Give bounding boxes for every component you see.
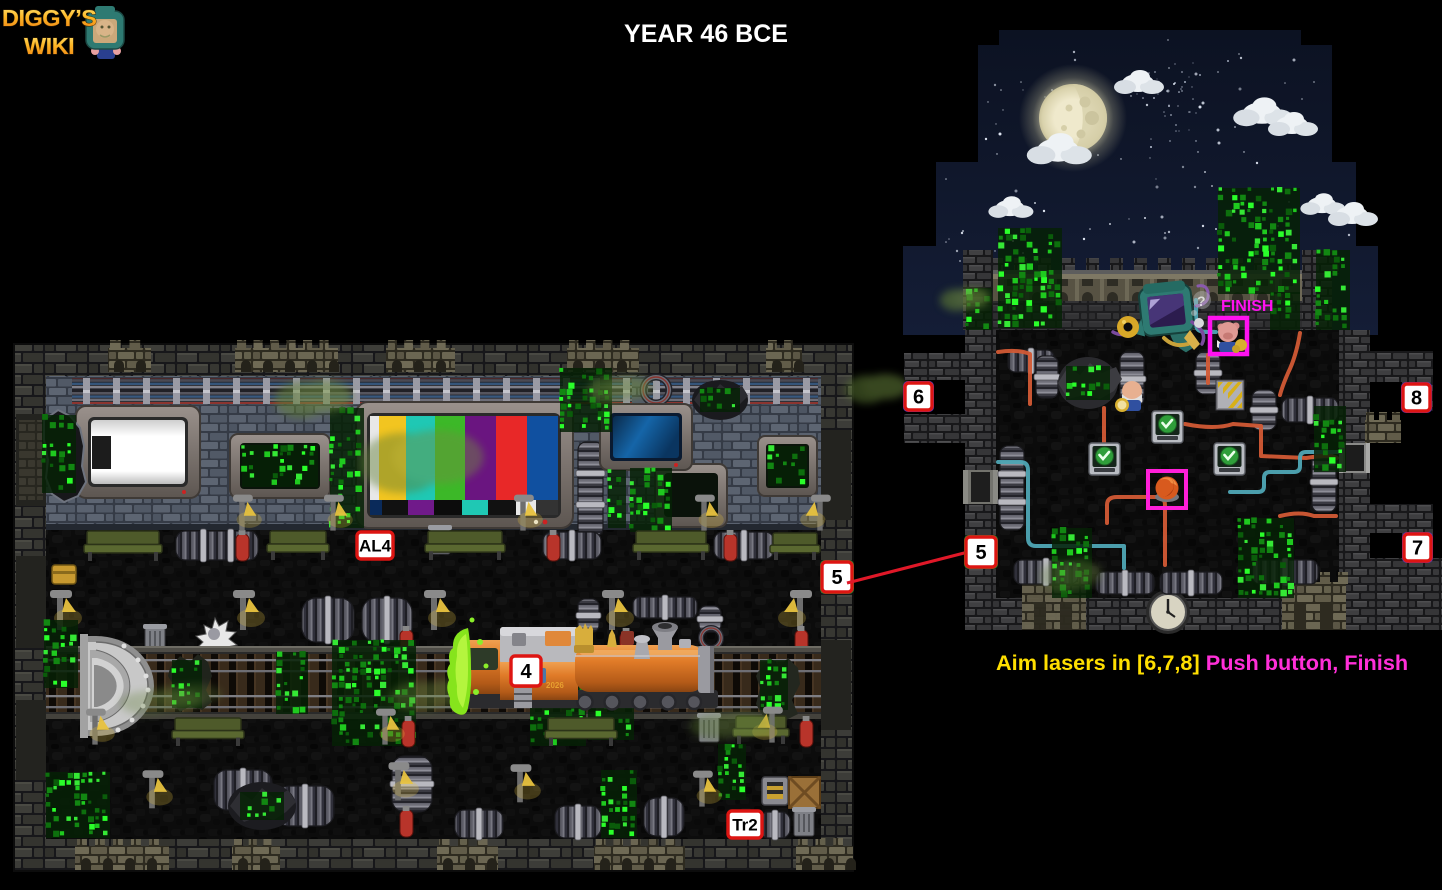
- svg-text:5: 5: [831, 567, 842, 589]
- svg-text:6: 6: [913, 387, 924, 409]
- svg-text:2026: 2026: [546, 681, 564, 690]
- svg-text:YEAR 46 BCE: YEAR 46 BCE: [624, 20, 788, 48]
- svg-text:Aim lasers in [6,7,8] Push but: Aim lasers in [6,7,8] Push button, Finis…: [996, 650, 1408, 675]
- svg-text:7: 7: [1412, 538, 1423, 560]
- svg-text:FINISH: FINISH: [1221, 298, 1273, 315]
- svg-text:5: 5: [975, 542, 986, 564]
- svg-text:WIKI: WIKI: [24, 33, 74, 59]
- svg-text:AL4: AL4: [359, 537, 392, 556]
- svg-text:Tr2: Tr2: [732, 816, 758, 835]
- svg-text:?: ?: [1197, 293, 1206, 309]
- svg-text:4: 4: [520, 661, 532, 683]
- svg-text:8: 8: [1411, 388, 1422, 410]
- svg-text:DIGGY’S: DIGGY’S: [2, 5, 96, 31]
